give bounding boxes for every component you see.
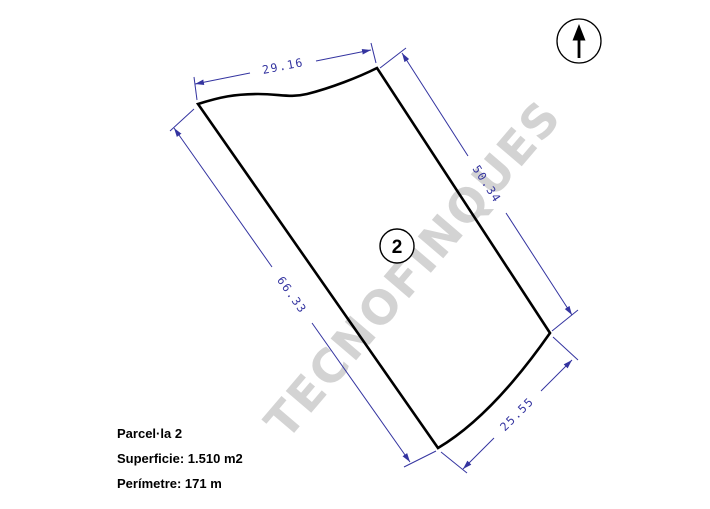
extension-line xyxy=(553,337,578,360)
parcel-drawing: 29.16 50.34 66.33 25.55 2 xyxy=(0,0,710,509)
dimension-label-bottom: 25.55 xyxy=(497,394,537,434)
dimension-label-left: 66.33 xyxy=(274,274,310,317)
extension-line xyxy=(441,452,467,473)
parcel-number: 2 xyxy=(392,237,403,258)
dimension-label-right: 50.34 xyxy=(470,163,505,206)
extension-line xyxy=(170,109,194,131)
parcel-perimeter: Perímetre: 171 m xyxy=(117,471,243,496)
parcel-info: Parcel·la 2 Superficie: 1.510 m2 Perímet… xyxy=(117,421,243,496)
parcel-surface: Superficie: 1.510 m2 xyxy=(117,446,243,471)
extension-line xyxy=(404,451,436,467)
north-arrow-icon xyxy=(557,19,601,63)
plan-canvas: TECNOFINQUES 29.16 50.34 66.33 xyxy=(0,0,710,509)
parcel-number-bubble: 2 xyxy=(380,229,414,263)
extension-line xyxy=(380,48,406,68)
parcel-title: Parcel·la 2 xyxy=(117,421,243,446)
extension-line xyxy=(194,77,197,100)
dimension-label-top: 29.16 xyxy=(261,55,305,77)
extension-line xyxy=(552,310,578,331)
extension-line xyxy=(371,43,376,63)
parcel-boundary xyxy=(198,68,550,448)
